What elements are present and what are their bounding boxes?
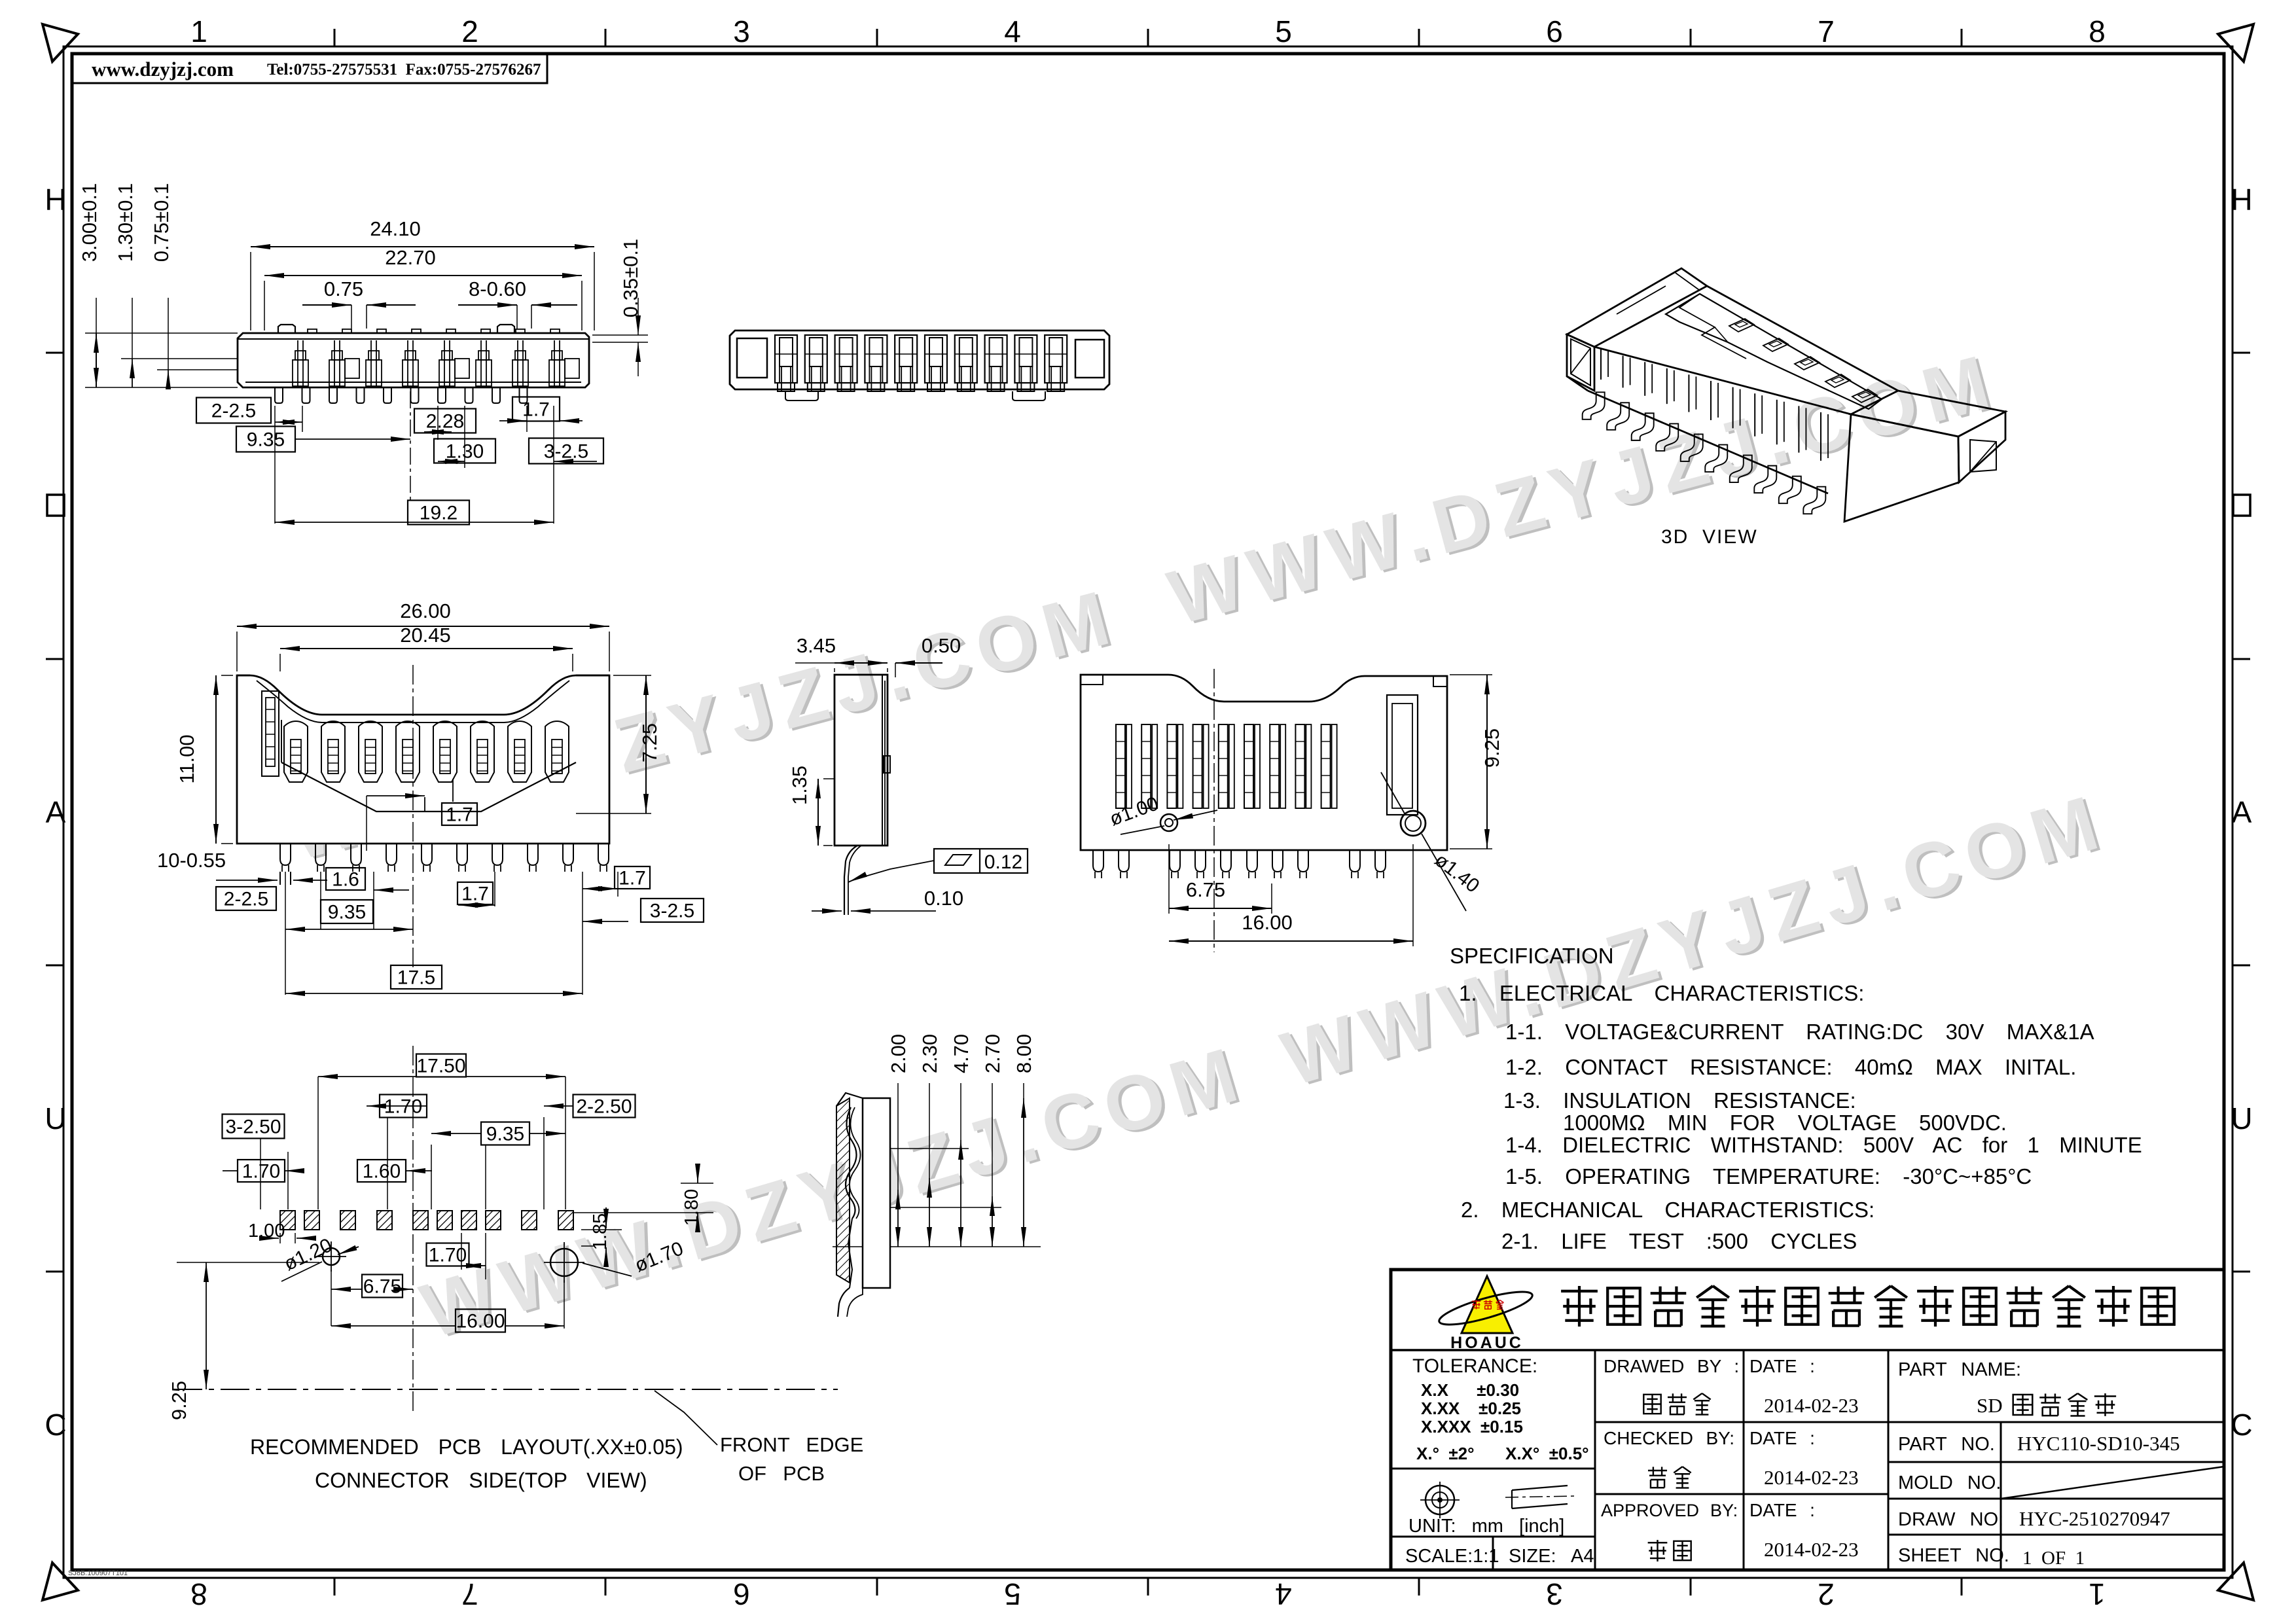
svg-text:8: 8 xyxy=(190,1577,207,1611)
svg-text:X.XX ±0.25: X.XX ±0.25 xyxy=(1421,1399,1521,1418)
svg-text:PART NO.: PART NO. xyxy=(1898,1434,1995,1455)
svg-text:H: H xyxy=(2231,183,2252,217)
svg-text:2.70: 2.70 xyxy=(981,1034,1004,1073)
svg-text:8: 8 xyxy=(2089,14,2106,48)
svg-text:26.00: 26.00 xyxy=(400,599,451,622)
svg-text:2-2.5: 2-2.5 xyxy=(211,401,256,422)
svg-text:7: 7 xyxy=(461,1577,478,1611)
svg-text:1.80: 1.80 xyxy=(681,1189,702,1226)
svg-text:22.70: 22.70 xyxy=(385,246,436,269)
svg-text:MOLD NO.: MOLD NO. xyxy=(1898,1472,2001,1493)
svg-text:FRONT EDGE: FRONT EDGE xyxy=(720,1433,863,1456)
svg-text:HOAUC: HOAUC xyxy=(1450,1334,1524,1352)
svg-text:UNIT: mm [inch]: UNIT: mm [inch] xyxy=(1408,1516,1564,1537)
svg-text:DRAW NO:: DRAW NO: xyxy=(1898,1509,2003,1530)
svg-text:7: 7 xyxy=(1818,14,1835,48)
svg-text:1.60: 1.60 xyxy=(363,1161,401,1183)
svg-text:8-0.60: 8-0.60 xyxy=(469,277,526,300)
svg-text:U: U xyxy=(45,1101,66,1135)
svg-text:SHEET NO.: SHEET NO. xyxy=(1898,1545,2009,1566)
svg-text:APPROVED BY:: APPROVED BY: xyxy=(1601,1501,1738,1520)
svg-text:HYC-2510270947: HYC-2510270947 xyxy=(2019,1507,2170,1530)
svg-text:6: 6 xyxy=(1546,14,1563,48)
svg-text:DATE :: DATE : xyxy=(1749,1500,1815,1520)
svg-text:9.35: 9.35 xyxy=(247,429,285,451)
svg-text:DATE :: DATE : xyxy=(1749,1428,1815,1448)
svg-text:1000MΩ MIN FOR VOLTAGE 500: 1000MΩ MIN FOR VOLTAGE 500VDC. xyxy=(1563,1111,2007,1135)
svg-text:1 OF 1: 1 OF 1 xyxy=(2022,1548,2085,1569)
svg-text:9.35: 9.35 xyxy=(486,1124,524,1145)
svg-text:3.45: 3.45 xyxy=(797,634,836,657)
svg-text:1-5. OPERATING TEMPERATURE:: 1-5. OPERATING TEMPERATURE: -30°C~+85°C xyxy=(1505,1164,2032,1188)
svg-text:3: 3 xyxy=(1546,1577,1563,1611)
svg-text:1.35: 1.35 xyxy=(788,766,811,805)
svg-text:1.7: 1.7 xyxy=(619,868,646,889)
svg-text:2014-02-23: 2014-02-23 xyxy=(1764,1394,1859,1417)
svg-text:2-2.5: 2-2.5 xyxy=(224,889,268,910)
svg-text:OF PCB: OF PCB xyxy=(738,1462,825,1485)
svg-text:www.dzyjzj.com: www.dzyjzj.com xyxy=(92,58,234,80)
svg-text:6.75: 6.75 xyxy=(1186,878,1225,901)
svg-text:SJ8B.100907T101: SJ8B.100907T101 xyxy=(68,1569,128,1577)
svg-text:C: C xyxy=(2231,1408,2252,1442)
svg-text:3: 3 xyxy=(733,14,750,48)
svg-text:3-2.50: 3-2.50 xyxy=(225,1116,281,1138)
svg-text:5: 5 xyxy=(1275,14,1292,48)
svg-text:3-2.5: 3-2.5 xyxy=(650,901,694,922)
svg-text:17.5: 17.5 xyxy=(397,967,435,989)
svg-text:16.00: 16.00 xyxy=(456,1311,505,1332)
svg-text:2-1. LIFE TEST :500 CYCLES: 2-1. LIFE TEST :500 CYCLES xyxy=(1501,1229,1857,1253)
svg-text:2.00: 2.00 xyxy=(887,1034,910,1073)
svg-text:SD: SD xyxy=(1977,1394,2003,1417)
svg-text:1.7: 1.7 xyxy=(461,883,489,905)
svg-text:2-2.50: 2-2.50 xyxy=(576,1096,632,1118)
svg-text:6.75: 6.75 xyxy=(363,1276,401,1298)
svg-text:1.70: 1.70 xyxy=(384,1096,422,1118)
svg-text:9.35: 9.35 xyxy=(328,902,366,923)
svg-text:SIZE: A4: SIZE: A4 xyxy=(1509,1546,1594,1567)
svg-text:1.85: 1.85 xyxy=(590,1213,611,1250)
svg-text:PART NAME:: PART NAME: xyxy=(1898,1359,2021,1380)
svg-text:X.X° ±0.5°: X.X° ±0.5° xyxy=(1505,1444,1589,1463)
svg-text:1: 1 xyxy=(190,14,207,48)
svg-text:0.75±0.1: 0.75±0.1 xyxy=(150,183,173,262)
svg-text:1-2. CONTACT RESISTANCE: 40: 1-2. CONTACT RESISTANCE: 40mΩ MAX INITAL… xyxy=(1505,1055,2076,1079)
svg-text:SPECIFICATION: SPECIFICATION xyxy=(1450,944,1614,968)
svg-text:6: 6 xyxy=(733,1577,750,1611)
svg-text:0.75: 0.75 xyxy=(324,277,363,300)
svg-text:2.28: 2.28 xyxy=(426,411,464,433)
svg-text:1-4. DIELECTRIC WITHSTAND:: 1-4. DIELECTRIC WITHSTAND: 500V AC for 1… xyxy=(1505,1133,2142,1157)
svg-text:2. MECHANICAL CHARACTERISTIC: 2. MECHANICAL CHARACTERISTICS: xyxy=(1461,1198,1874,1222)
svg-text:9.25: 9.25 xyxy=(168,1381,190,1420)
svg-text:11.00: 11.00 xyxy=(175,734,198,783)
svg-text:2: 2 xyxy=(461,14,478,48)
svg-text:SCALE:1:1: SCALE:1:1 xyxy=(1405,1546,1499,1567)
svg-text:2.30: 2.30 xyxy=(918,1034,941,1073)
svg-text:7.25: 7.25 xyxy=(638,723,661,762)
svg-text:A: A xyxy=(46,795,66,829)
svg-text:CHECKED BY:: CHECKED BY: xyxy=(1604,1428,1734,1448)
svg-text:1. ELECTRICAL CHARACTERISTIC: 1. ELECTRICAL CHARACTERISTICS: xyxy=(1459,981,1864,1005)
svg-text:4: 4 xyxy=(1004,14,1021,48)
svg-text:X.X ±0.30: X.X ±0.30 xyxy=(1421,1380,1519,1400)
svg-text:1.70: 1.70 xyxy=(242,1161,280,1183)
svg-text:Tel:0755-27575531 Fax:0755-27: Tel:0755-27575531 Fax:0755-27576267 xyxy=(267,61,541,79)
svg-text:8.00: 8.00 xyxy=(1013,1034,1035,1073)
svg-text:U: U xyxy=(2231,1101,2252,1135)
svg-text:3-2.5: 3-2.5 xyxy=(544,441,588,463)
svg-text:4.70: 4.70 xyxy=(950,1034,973,1073)
svg-text:A: A xyxy=(2232,795,2252,829)
svg-text:19.2: 19.2 xyxy=(420,503,457,524)
svg-text:1: 1 xyxy=(2089,1577,2106,1611)
svg-text:20.45: 20.45 xyxy=(400,624,451,647)
svg-text:2014-02-23: 2014-02-23 xyxy=(1764,1466,1859,1489)
svg-text:9.25: 9.25 xyxy=(1480,728,1503,768)
svg-text:4: 4 xyxy=(1275,1577,1292,1611)
svg-text:2014-02-23: 2014-02-23 xyxy=(1764,1538,1859,1561)
svg-text:H: H xyxy=(45,183,66,217)
svg-text:C: C xyxy=(45,1408,66,1442)
svg-text:X.XXX ±0.15: X.XXX ±0.15 xyxy=(1421,1417,1523,1436)
svg-text:RECOMMENDED PCB LAYOUT(.XX±0: RECOMMENDED PCB LAYOUT(.XX±0.05) xyxy=(250,1435,683,1459)
svg-text:16.00: 16.00 xyxy=(1242,911,1293,934)
svg-text:3.00±0.1: 3.00±0.1 xyxy=(78,183,101,262)
svg-text:0.50: 0.50 xyxy=(922,634,961,657)
svg-text:DRAWED BY :: DRAWED BY : xyxy=(1604,1356,1739,1376)
svg-text:X.° ±2°: X.° ±2° xyxy=(1416,1444,1475,1463)
svg-text:24.10: 24.10 xyxy=(370,217,421,240)
svg-text:HYC110-SD10-345: HYC110-SD10-345 xyxy=(2017,1432,2180,1455)
svg-text:1-1. VOLTAGE&CURRENT RATING:: 1-1. VOLTAGE&CURRENT RATING:DC 30V MAX&1… xyxy=(1505,1020,2094,1044)
svg-text:3D VIEW: 3D VIEW xyxy=(1661,526,1758,548)
svg-text:10-0.55: 10-0.55 xyxy=(157,849,226,872)
svg-text:2: 2 xyxy=(1818,1577,1835,1611)
svg-text:0.12: 0.12 xyxy=(984,851,1022,873)
svg-text:1-3. INSULATION RESISTANCE:: 1-3. INSULATION RESISTANCE: xyxy=(1503,1088,1856,1113)
svg-text:CONNECTOR SIDE(TOP VIEW): CONNECTOR SIDE(TOP VIEW) xyxy=(315,1469,647,1492)
svg-text:1.7: 1.7 xyxy=(446,804,473,826)
svg-text:1.30±0.1: 1.30±0.1 xyxy=(114,183,137,262)
svg-text:TOLERANCE:: TOLERANCE: xyxy=(1412,1355,1537,1377)
svg-text:1.6: 1.6 xyxy=(332,869,359,891)
svg-text:DATE :: DATE : xyxy=(1749,1356,1815,1376)
svg-text:17.50: 17.50 xyxy=(416,1056,465,1077)
svg-text:5: 5 xyxy=(1004,1577,1021,1611)
svg-text:0.10: 0.10 xyxy=(924,887,963,910)
